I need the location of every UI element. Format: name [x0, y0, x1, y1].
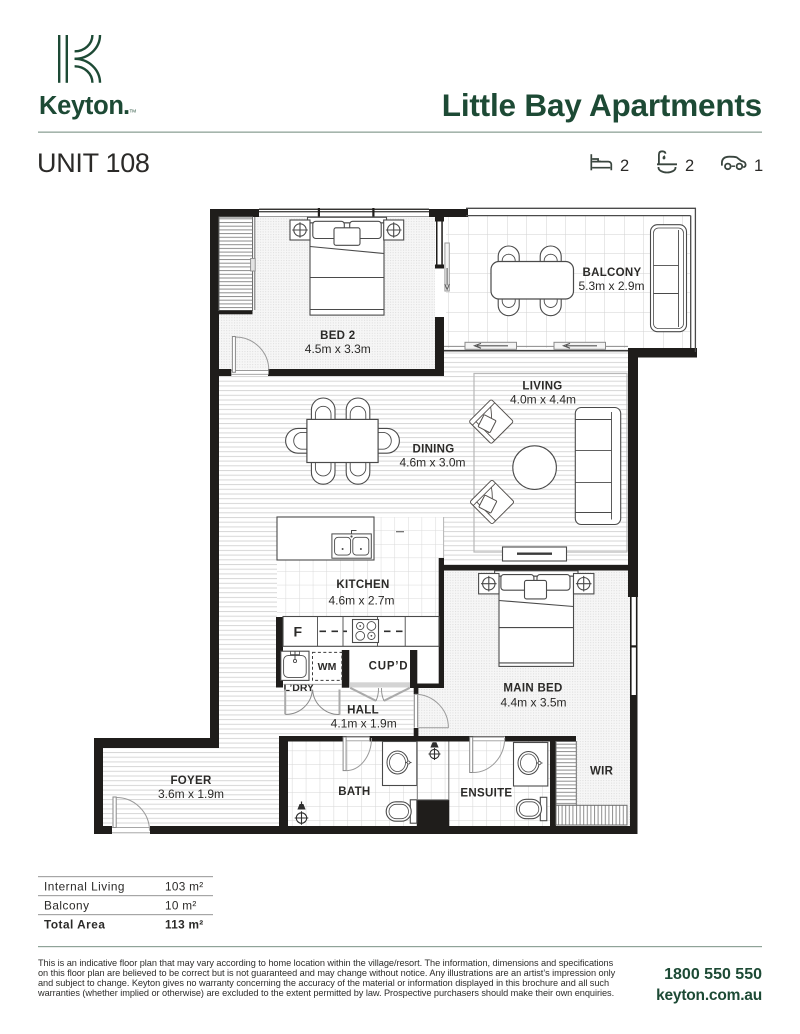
svg-text:4.0m x 4.4m: 4.0m x 4.4m [510, 393, 576, 407]
svg-text:TM: TM [130, 109, 137, 114]
svg-text:LIVING: LIVING [522, 381, 562, 393]
svg-text:DINING: DINING [412, 443, 454, 455]
svg-text:4.1m x 1.9m: 4.1m x 1.9m [331, 717, 397, 731]
svg-text:HALL: HALL [347, 705, 379, 717]
svg-text:4.5m x 3.3m: 4.5m x 3.3m [305, 342, 371, 356]
svg-text:2: 2 [685, 157, 694, 175]
svg-text:5.3m x 2.9m: 5.3m x 2.9m [578, 279, 644, 293]
svg-text:.: . [123, 92, 130, 120]
svg-text:KITCHEN: KITCHEN [336, 579, 389, 591]
svg-text:4.6m x 3.0m: 4.6m x 3.0m [399, 455, 465, 469]
svg-text:Keyton: Keyton [39, 92, 124, 120]
svg-text:1800 550 550: 1800 550 550 [664, 966, 762, 983]
svg-text:10 m²: 10 m² [165, 899, 197, 913]
svg-text:1: 1 [754, 157, 763, 175]
svg-text:This is an indicative floor pl: This is an indicative floor plan that ma… [38, 958, 614, 968]
svg-text:4.4m x 3.5m: 4.4m x 3.5m [500, 696, 566, 710]
svg-text:FOYER: FOYER [170, 775, 212, 787]
svg-text:113 m²: 113 m² [165, 918, 204, 932]
svg-text:and subject to change. Keyton: and subject to change. Keyton gives no w… [38, 978, 609, 988]
svg-text:L’DRY: L’DRY [284, 682, 315, 694]
svg-text:Total Area: Total Area [44, 918, 105, 932]
svg-text:on this floor plan are believe: on this floor plan are believed to be co… [38, 968, 616, 978]
svg-text:warranties (whether implied or: warranties (whether implied or otherwise… [37, 988, 614, 998]
svg-text:BED 2: BED 2 [320, 330, 355, 342]
svg-text:BALCONY: BALCONY [583, 267, 642, 279]
svg-text:WIR: WIR [590, 765, 614, 777]
svg-text:UNIT 108: UNIT 108 [37, 148, 150, 178]
svg-text:103 m²: 103 m² [165, 880, 204, 894]
svg-text:2: 2 [620, 157, 629, 175]
svg-text:keyton.com.au: keyton.com.au [656, 987, 762, 1004]
svg-text:BATH: BATH [338, 786, 370, 798]
svg-text:Balcony: Balcony [44, 899, 89, 913]
svg-text:Little Bay Apartments: Little Bay Apartments [442, 87, 762, 123]
svg-text:3.6m x 1.9m: 3.6m x 1.9m [158, 787, 224, 801]
svg-text:CUP’D: CUP’D [369, 661, 409, 673]
svg-text:MAIN BED: MAIN BED [503, 683, 562, 695]
svg-text:WM: WM [318, 661, 337, 673]
svg-text:Internal Living: Internal Living [44, 880, 125, 894]
svg-text:4.6m x 2.7m: 4.6m x 2.7m [328, 594, 394, 608]
svg-text:ENSUITE: ENSUITE [460, 787, 512, 799]
svg-text:F: F [294, 624, 303, 640]
